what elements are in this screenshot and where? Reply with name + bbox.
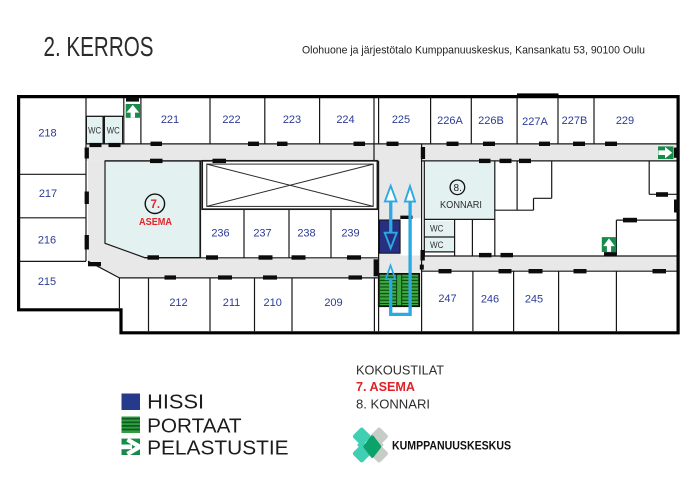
- svg-text:226B: 226B: [478, 115, 504, 127]
- svg-text:212: 212: [169, 297, 187, 309]
- svg-text:227B: 227B: [562, 115, 588, 127]
- svg-text:KONNARI: KONNARI: [440, 199, 482, 211]
- svg-text:210: 210: [264, 297, 282, 309]
- svg-text:2. KERROS: 2. KERROS: [44, 31, 154, 62]
- svg-text:238: 238: [297, 227, 315, 239]
- svg-text:WC: WC: [88, 126, 102, 136]
- svg-text:237: 237: [253, 227, 271, 239]
- svg-text:215: 215: [38, 276, 56, 288]
- svg-text:239: 239: [341, 227, 359, 239]
- svg-text:222: 222: [222, 114, 240, 126]
- svg-text:Olohuone ja järjestötalo Kumpp: Olohuone ja järjestötalo Kumppanuuskesku…: [302, 45, 645, 57]
- svg-text:8. KONNARI: 8. KONNARI: [356, 396, 430, 411]
- svg-text:229: 229: [616, 115, 634, 127]
- svg-text:225: 225: [392, 114, 410, 126]
- svg-text:217: 217: [39, 188, 57, 200]
- svg-text:ASEMA: ASEMA: [139, 217, 172, 228]
- svg-text:8.: 8.: [454, 183, 462, 194]
- svg-text:227A: 227A: [522, 116, 548, 128]
- svg-text:246: 246: [481, 294, 499, 306]
- svg-text:247: 247: [438, 293, 456, 305]
- svg-text:221: 221: [161, 114, 179, 126]
- svg-text:218: 218: [38, 127, 56, 139]
- svg-text:7. ASEMA: 7. ASEMA: [356, 379, 415, 394]
- svg-text:223: 223: [283, 114, 301, 126]
- svg-text:WC: WC: [430, 240, 444, 250]
- svg-text:WC: WC: [430, 224, 444, 234]
- svg-text:KOKOUSTILAT: KOKOUSTILAT: [356, 362, 444, 377]
- svg-text:211: 211: [223, 297, 241, 309]
- svg-text:KUMPPANUUSKESKUS: KUMPPANUUSKESKUS: [392, 439, 511, 453]
- svg-text:245: 245: [525, 294, 543, 306]
- svg-text:PELASTUSTIE: PELASTUSTIE: [147, 438, 289, 460]
- svg-text:HISSI: HISSI: [147, 392, 204, 414]
- svg-text:226A: 226A: [437, 115, 463, 127]
- svg-text:236: 236: [211, 227, 229, 239]
- svg-text:224: 224: [336, 114, 354, 126]
- svg-text:216: 216: [38, 234, 56, 246]
- svg-text:PORTAAT: PORTAAT: [147, 415, 242, 437]
- svg-text:7.: 7.: [151, 199, 161, 211]
- svg-text:WC: WC: [107, 126, 121, 136]
- svg-text:209: 209: [324, 297, 342, 309]
